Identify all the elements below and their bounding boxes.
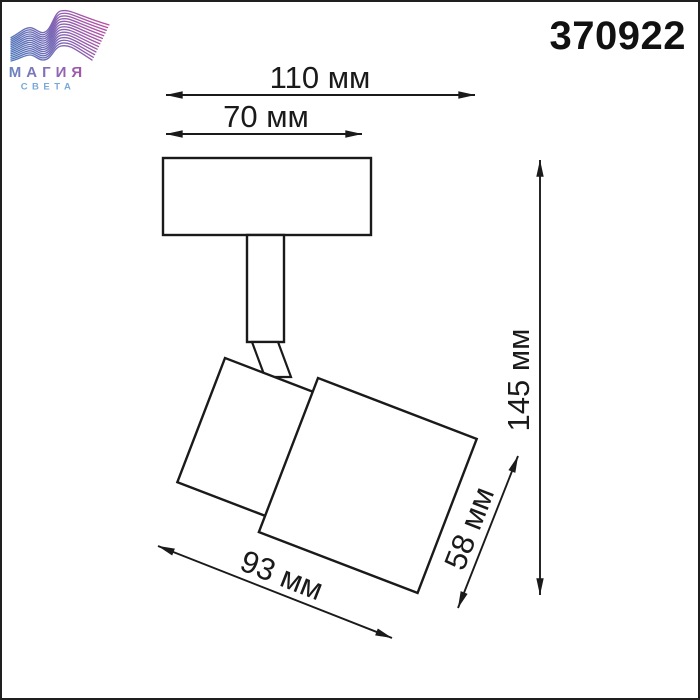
- dimension-overall-height: 145 мм: [501, 160, 540, 595]
- product-code: 370922: [550, 14, 686, 58]
- brand-logo-waves-icon: [11, 11, 109, 61]
- dimension-plate-width-label: 70 мм: [223, 99, 309, 134]
- diagram-canvas: МАГИЯ СВЕТА 370922 110 мм 70 мм 145 мм 9…: [0, 0, 700, 700]
- brand-name: МАГИЯ: [9, 64, 87, 81]
- dimension-overall-height-label: 145 мм: [501, 329, 536, 432]
- dimension-overall-width-label: 110 мм: [270, 60, 371, 95]
- dimension-plate-width: 70 мм: [166, 99, 362, 134]
- stem-shape: [247, 235, 284, 342]
- brand-logo: МАГИЯ СВЕТА: [9, 11, 109, 93]
- dimension-drawing: МАГИЯ СВЕТА 370922 110 мм 70 мм 145 мм 9…: [0, 0, 700, 700]
- fixture-drawing: [163, 158, 477, 593]
- brand-subtitle: СВЕТА: [21, 82, 76, 93]
- mounting-plate-shape: [163, 158, 371, 235]
- page-border: [1, 1, 699, 699]
- dimension-overall-width: 110 мм: [166, 60, 475, 95]
